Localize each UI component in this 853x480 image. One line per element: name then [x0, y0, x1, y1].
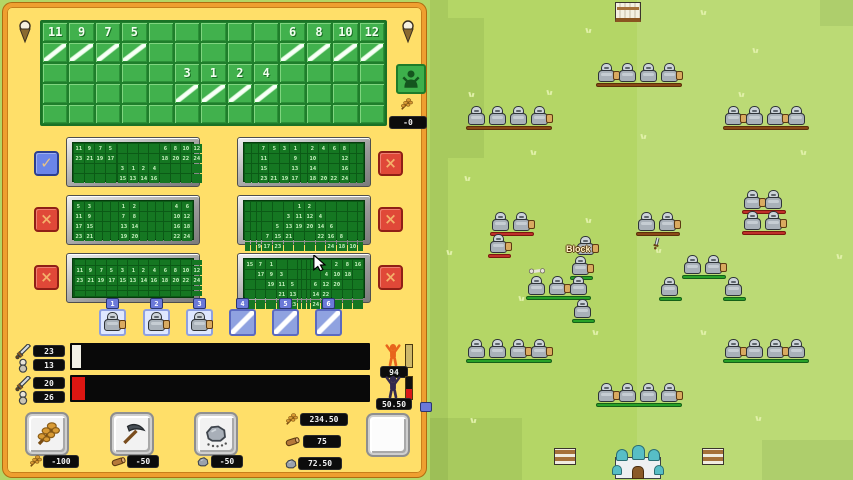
preset-cell — [326, 212, 336, 221]
preset-cell: 2 — [308, 144, 318, 153]
unit-slot-tab[interactable]: 1 — [106, 298, 119, 309]
preset-cell — [298, 280, 301, 289]
confirm-formation-button[interactable]: ✓ — [34, 151, 59, 176]
preset-cell — [252, 154, 258, 163]
progress-bar — [70, 343, 370, 370]
delete-formation-button[interactable]: × — [34, 265, 59, 290]
preset-cell — [305, 242, 315, 251]
preset-cell — [280, 164, 290, 173]
preset-cell — [86, 291, 96, 296]
grid-cell[interactable]: 10 — [332, 22, 358, 42]
preset-cell: 6 — [160, 266, 170, 275]
pin-icon — [17, 20, 33, 44]
grid-cell[interactable] — [121, 104, 147, 124]
preset-cell — [156, 232, 163, 241]
grid-cell[interactable] — [121, 83, 147, 103]
terrain-patch — [820, 0, 853, 26]
preset-cell — [256, 300, 266, 309]
preset-cell: 18 — [308, 174, 318, 183]
preset-cell — [95, 232, 102, 241]
grid-cell[interactable] — [306, 63, 332, 83]
preset-cell — [171, 164, 181, 173]
preset-cell — [171, 174, 181, 183]
grass-tuft — [518, 296, 526, 301]
knight-sprite — [492, 212, 510, 233]
preset-cell — [192, 286, 202, 291]
grid-cell[interactable] — [121, 63, 147, 83]
preset-cell — [257, 212, 262, 221]
preset-cell: 12 — [192, 266, 202, 275]
preset-cell: 12 — [192, 144, 202, 153]
preset-cell: 11 — [294, 212, 304, 221]
grass-tuft — [470, 418, 478, 423]
preset-cell: 2 — [305, 202, 315, 211]
grid-cell[interactable] — [359, 42, 385, 62]
preset-cell — [140, 212, 147, 221]
unit-figure-icon — [384, 375, 402, 398]
delete-formation-button[interactable]: × — [378, 265, 403, 290]
attack-value: 23 — [34, 346, 64, 356]
preset-cell — [294, 242, 304, 251]
preset-cell — [302, 290, 305, 299]
grid-cell[interactable] — [200, 42, 226, 62]
barricade-prop — [554, 448, 576, 465]
wheat-icon — [283, 412, 299, 432]
grid-cell[interactable] — [42, 63, 68, 83]
preset-cell: 19 — [280, 174, 290, 183]
preset-cell — [350, 144, 356, 153]
grid-cell[interactable]: 1 — [200, 63, 226, 83]
villager-button[interactable] — [396, 64, 426, 94]
knight-sprite — [705, 255, 723, 276]
formation-preset-panel[interactable]: 531246119781012171513141618232119202224 — [66, 195, 200, 245]
preset-cell: 17 — [290, 174, 300, 183]
knight-sprite — [640, 383, 658, 404]
preset-cell: 23 — [75, 276, 85, 285]
grid-cell[interactable] — [200, 22, 226, 42]
wood-icon — [110, 454, 127, 474]
preset-cell — [118, 144, 128, 153]
buy-stone-button[interactable] — [196, 414, 236, 454]
preset-cell — [111, 212, 118, 221]
grid-cell[interactable]: 8 — [306, 22, 332, 42]
preset-cell: 9 — [86, 266, 96, 275]
preset-cell — [348, 222, 358, 231]
buy-wheat-button[interactable] — [27, 414, 67, 454]
grid-cell[interactable] — [359, 63, 385, 83]
preset-cell — [266, 290, 276, 299]
preset-cell: 17 — [107, 276, 117, 285]
knight-sprite — [619, 63, 637, 84]
preset-cell — [348, 212, 358, 221]
preset-cell: 15 — [273, 232, 283, 241]
grid-cell[interactable] — [148, 42, 174, 62]
preset-cell: 9 — [257, 242, 262, 251]
unit-slot-tab[interactable]: 6 — [322, 298, 335, 309]
grid-cell[interactable] — [306, 42, 332, 62]
grid-cell[interactable] — [174, 104, 200, 124]
preset-cell: 21 — [85, 154, 95, 163]
castle-prop — [613, 445, 663, 480]
preset-cell: 10 — [308, 154, 318, 163]
grid-cell[interactable] — [253, 22, 279, 42]
preset-cell: 23 — [74, 232, 84, 241]
preset-cell: 24 — [340, 174, 350, 183]
preset-cell: 15 — [118, 276, 128, 285]
preset-cell — [107, 286, 117, 291]
preset-cell — [75, 260, 85, 265]
grid-cell[interactable]: 12 — [359, 22, 385, 42]
capacity-bar — [405, 376, 413, 400]
preset-cell: 19 — [266, 280, 276, 289]
preset-cell: 16 — [353, 260, 363, 269]
knight-sprite — [598, 63, 616, 84]
preset-cell: 13 — [290, 164, 300, 173]
delete-formation-button[interactable]: × — [378, 207, 403, 232]
block-text: Block — [566, 244, 591, 254]
grid-cell[interactable] — [332, 42, 358, 62]
preset-cell — [256, 280, 266, 289]
grass-tuft — [585, 28, 593, 33]
grid-cell[interactable] — [253, 83, 279, 103]
terrain-patch — [430, 418, 522, 480]
preset-cell: 16 — [326, 232, 336, 241]
preset-cell — [149, 260, 159, 265]
formation-preset-panel[interactable]: 123111245131920146715212216891723241810 — [237, 195, 371, 245]
knight-sprite — [746, 339, 764, 360]
knight-sprite — [640, 63, 658, 84]
unit-count-badge: 50.50 — [377, 399, 411, 409]
preset-cell — [171, 286, 181, 291]
preset-cell — [156, 212, 163, 221]
preset-cell — [160, 164, 170, 173]
preset-cell: 14 — [316, 222, 326, 231]
grid-cell[interactable]: 7 — [95, 22, 121, 42]
sword-drop — [650, 236, 663, 256]
preset-cell — [298, 260, 301, 269]
unit-slot-filled[interactable] — [143, 309, 170, 336]
preset-cell — [148, 232, 155, 241]
unit-slot-tab[interactable]: 5 — [279, 298, 292, 309]
defense-value: 13 — [34, 360, 64, 370]
preset-cell — [245, 212, 250, 221]
preset-cell — [149, 154, 159, 163]
preset-cell — [252, 164, 258, 173]
formation-grid[interactable]: 119756810123124 — [40, 20, 387, 126]
grid-cell[interactable] — [174, 83, 200, 103]
preset-cell — [171, 291, 181, 296]
grid-cell[interactable] — [359, 83, 385, 103]
preset-cell — [106, 174, 116, 183]
preset-cell: 10 — [181, 266, 191, 275]
grid-cell[interactable] — [95, 104, 121, 124]
preset-cell: 3 — [277, 270, 287, 279]
preset-cell: 20 — [305, 222, 315, 231]
preset-cell — [302, 280, 305, 289]
grid-cell[interactable] — [227, 83, 253, 103]
preset-cell — [128, 144, 138, 153]
preset-cell: 22 — [172, 232, 182, 241]
unit-slot-empty[interactable] — [229, 309, 256, 336]
preset-cell: 20 — [130, 232, 140, 241]
knight-sprite — [744, 190, 762, 211]
preset-cell — [307, 300, 310, 309]
grid-cell[interactable] — [200, 83, 226, 103]
preset-cell — [269, 154, 279, 163]
defense-value: 26 — [34, 392, 64, 402]
grid-cell[interactable] — [279, 104, 305, 124]
preset-cell: 9 — [266, 270, 276, 279]
preset-cell — [95, 164, 105, 173]
preset-cell — [251, 212, 256, 221]
preset-screen: 123111245131920146715212216891723241810 — [243, 200, 365, 240]
grid-cell[interactable] — [200, 104, 226, 124]
grid-cell[interactable] — [148, 104, 174, 124]
preset-cell — [245, 270, 255, 279]
preset-cell: 1 — [128, 164, 138, 173]
knight-sprite — [767, 339, 785, 360]
grid-cell[interactable] — [227, 22, 253, 42]
grid-cell[interactable] — [42, 104, 68, 124]
preset-cell: 16 — [149, 276, 159, 285]
stone-cost: -50 — [212, 456, 242, 467]
knight-sprite — [661, 63, 679, 84]
preset-cell: 5 — [106, 144, 116, 153]
preset-cell — [298, 270, 301, 279]
preset-cell — [149, 291, 159, 296]
grid-cell[interactable]: 9 — [68, 22, 94, 42]
grid-cell[interactable] — [174, 42, 200, 62]
knight-sprite — [619, 383, 637, 404]
preset-cell — [86, 286, 96, 291]
preset-cell — [128, 154, 138, 163]
preset-cell: 1 — [128, 266, 138, 275]
grid-cell[interactable] — [279, 83, 305, 103]
preset-cell — [348, 202, 358, 211]
grid-cell[interactable] — [227, 42, 253, 62]
preset-cell: 6 — [326, 222, 336, 231]
preset-cell — [301, 164, 307, 173]
grid-cell[interactable] — [95, 42, 121, 62]
grid-cell[interactable] — [279, 63, 305, 83]
preset-cell: 4 — [319, 144, 329, 153]
preset-cell — [164, 232, 171, 241]
preset-cell: 12 — [321, 280, 331, 289]
preset-cell: 13 — [128, 174, 138, 183]
preset-cell: 10 — [348, 242, 358, 251]
delete-formation-button[interactable]: × — [34, 207, 59, 232]
preset-cell — [358, 242, 363, 251]
preset-cell — [118, 291, 128, 296]
grid-cell[interactable] — [306, 83, 332, 103]
preset-cell: 11 — [259, 154, 269, 163]
grid-cell[interactable]: 11 — [42, 22, 68, 42]
preset-cell: 20 — [171, 154, 181, 163]
grid-cell[interactable]: 5 — [121, 22, 147, 42]
grid-cell[interactable] — [148, 83, 174, 103]
unit-slot-tab[interactable]: 3 — [193, 298, 206, 309]
defense-icon — [16, 390, 30, 410]
preset-cell: 14 — [139, 174, 149, 183]
knight-sprite — [661, 383, 679, 404]
knight-sprite — [598, 383, 616, 404]
preset-cell — [358, 232, 363, 241]
preset-cell — [164, 212, 171, 221]
preset-cell — [357, 144, 363, 153]
knight-sprite — [744, 211, 762, 232]
preset-cell: 8 — [130, 212, 140, 221]
preset-cell: 23 — [273, 242, 283, 251]
grid-cell[interactable] — [68, 104, 94, 124]
preset-cell — [257, 232, 262, 241]
terrain-patch — [762, 440, 853, 480]
preset-cell: 4 — [172, 202, 182, 211]
preset-cell: 20 — [332, 280, 342, 289]
grid-cell[interactable] — [95, 83, 121, 103]
grid-cell[interactable]: 6 — [279, 22, 305, 42]
knight-sprite — [489, 339, 507, 360]
preset-cell: 14 — [308, 164, 318, 173]
grid-cell[interactable] — [359, 104, 385, 124]
preset-cell — [95, 222, 102, 231]
unit-slot-filled[interactable] — [99, 309, 126, 336]
preset-cell: 3 — [284, 212, 294, 221]
preset-cell: 3 — [85, 202, 95, 211]
grass-tuft — [468, 92, 476, 97]
grid-cell[interactable] — [42, 83, 68, 103]
preset-cell: 8 — [343, 260, 353, 269]
grid-cell[interactable] — [42, 42, 68, 62]
preset-cell — [288, 260, 298, 269]
preset-cell — [140, 222, 147, 231]
preset-cell — [75, 286, 85, 291]
preset-cell: 11 — [74, 212, 84, 221]
grid-cell[interactable] — [174, 22, 200, 42]
preset-cell — [245, 280, 255, 289]
grid-cell[interactable] — [279, 42, 305, 62]
knight-sprite — [765, 211, 783, 232]
preset-cell — [74, 174, 84, 183]
preset-cell — [251, 242, 256, 251]
preset-cell — [326, 202, 336, 211]
preset-cell: 16 — [340, 164, 350, 173]
preset-cell — [357, 164, 363, 173]
preset-cell: 1 — [266, 260, 276, 269]
grid-cell[interactable] — [332, 104, 358, 124]
grid-cell[interactable]: 4 — [253, 63, 279, 83]
grid-cell[interactable] — [306, 104, 332, 124]
knight-sprite — [191, 312, 209, 333]
preset-cell: 22 — [316, 232, 326, 241]
wood-icon — [284, 434, 301, 454]
preset-cell — [164, 222, 171, 231]
grid-cell[interactable] — [95, 63, 121, 83]
unit-slot-filled[interactable] — [186, 309, 213, 336]
knight-sprite — [684, 255, 702, 276]
preset-cell — [103, 222, 110, 231]
grid-cell[interactable] — [68, 83, 94, 103]
preset-cell: 19 — [96, 276, 106, 285]
preset-cell — [160, 260, 170, 265]
preset-cell: 2 — [139, 266, 149, 275]
grid-cell[interactable] — [253, 104, 279, 124]
preset-cell: 18 — [160, 154, 170, 163]
capacity-bar — [405, 344, 413, 368]
grid-cell[interactable] — [253, 42, 279, 62]
delete-formation-button[interactable]: × — [378, 151, 403, 176]
empty-action-button[interactable] — [368, 415, 408, 455]
preset-cell: 5 — [273, 222, 283, 231]
preset-cell — [302, 300, 305, 309]
grid-cell[interactable] — [148, 63, 174, 83]
preset-cell — [353, 300, 363, 309]
preset-cell — [251, 202, 256, 211]
preset-cell — [245, 222, 250, 231]
preset-cell — [280, 154, 290, 163]
preset-cell — [337, 212, 347, 221]
preset-cell — [343, 290, 353, 299]
preset-cell — [139, 291, 149, 296]
grid-cell[interactable] — [121, 42, 147, 62]
formation-preset-panel[interactable]: 119753124681012232119171513141618202224 — [66, 253, 200, 303]
unit-slot-tab[interactable]: 4 — [236, 298, 249, 309]
grid-cell[interactable] — [68, 63, 94, 83]
preset-cell — [353, 290, 363, 299]
preset-cell: 12 — [182, 212, 192, 221]
preset-cell: 20 — [171, 276, 181, 285]
preset-cell — [160, 174, 170, 183]
grass-tuft — [738, 92, 746, 97]
preset-cell: 13 — [128, 276, 138, 285]
grid-cell[interactable] — [148, 22, 174, 42]
formation-preset-panel[interactable]: 753124681191012151314162321191718202224 — [237, 137, 371, 187]
preset-cell — [357, 154, 363, 163]
preset-cell: 16 — [172, 222, 182, 231]
preset-cell — [103, 212, 110, 221]
formation-preset-panel[interactable]: 157128161793410181911561220211314222324 — [237, 253, 371, 303]
preset-cell — [284, 242, 294, 251]
preset-cell — [118, 286, 128, 291]
grid-cell[interactable]: 2 — [227, 63, 253, 83]
preset-cell: 20 — [319, 174, 329, 183]
preset-cell: 5 — [288, 280, 298, 289]
preset-cell: 14 — [130, 222, 140, 231]
buy-wood-button[interactable] — [112, 414, 152, 454]
grid-cell[interactable] — [332, 83, 358, 103]
preset-cell — [302, 270, 305, 279]
preset-cell — [139, 144, 149, 153]
unit-slot-empty[interactable] — [272, 309, 299, 336]
wheat-cost: -100 — [44, 456, 78, 467]
grass-tuft — [530, 150, 538, 155]
unit-slot-tab[interactable]: 2 — [150, 298, 163, 309]
formation-preset-panel[interactable]: 119756810122321191718202224312415131416 — [66, 137, 200, 187]
preset-cell — [266, 300, 276, 309]
preset-cell: 9 — [290, 154, 300, 163]
grid-cell[interactable] — [68, 42, 94, 62]
grid-cell[interactable]: 3 — [174, 63, 200, 83]
preset-screen: 753124681191012151314162321191718202224 — [243, 142, 365, 182]
preset-cell — [307, 280, 310, 289]
preset-cell — [298, 300, 301, 309]
preset-cell — [181, 291, 191, 296]
grid-cell[interactable] — [332, 63, 358, 83]
unit-slot-empty[interactable] — [315, 309, 342, 336]
grid-cell[interactable] — [227, 104, 253, 124]
knight-sprite — [767, 106, 785, 127]
preset-cell: 10 — [172, 212, 182, 221]
game-screen: Block 119756810123124 -0 119756810122321… — [0, 0, 853, 480]
